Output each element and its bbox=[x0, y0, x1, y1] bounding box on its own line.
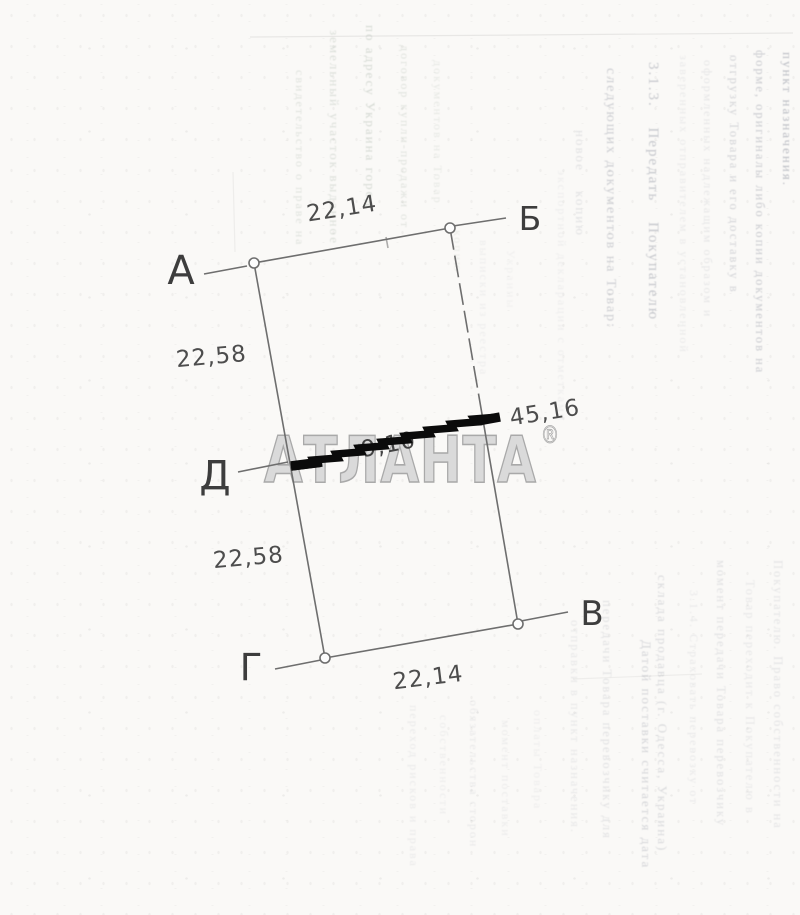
scanned-land-plot-page: { "plot": { "labels": { "a": "А", "b": "… bbox=[0, 0, 800, 915]
edge-b-v-upper bbox=[450, 228, 483, 420]
vertex-marker-a bbox=[249, 258, 259, 268]
vertex-label-g: Г bbox=[240, 646, 263, 689]
vertex-label-b: Б bbox=[519, 199, 542, 238]
redaction-line-nub bbox=[291, 462, 322, 466]
edge-g-v bbox=[325, 624, 518, 658]
scan-streak bbox=[250, 33, 793, 37]
vertex-marker-v bbox=[513, 619, 523, 629]
scan-streak bbox=[233, 172, 235, 252]
tick-g bbox=[275, 660, 321, 669]
edge-b-v-lower bbox=[483, 420, 518, 624]
redaction-line-nub bbox=[478, 417, 500, 421]
plot-diagram-svg: А Б В Г Д 22,14 22,58 22,58 22,14 45,16 … bbox=[0, 0, 800, 915]
tick-a bbox=[204, 266, 247, 274]
dimension-left-lower: 22,58 bbox=[212, 542, 285, 574]
scan-streak bbox=[573, 674, 702, 679]
dimension-cross: 45,16 bbox=[508, 395, 582, 432]
edge-a-b bbox=[254, 228, 450, 263]
vertex-marker-b bbox=[445, 223, 455, 233]
vertex-marker-g bbox=[320, 653, 330, 663]
tick-d bbox=[238, 462, 288, 472]
dimension-top: 22,14 bbox=[305, 191, 379, 228]
tick-b bbox=[453, 218, 506, 226]
vertex-label-v: В bbox=[580, 594, 603, 634]
tick-v bbox=[521, 612, 568, 621]
redaction-line bbox=[291, 417, 499, 467]
dimension-bottom: 22,14 bbox=[391, 661, 464, 695]
vertex-label-a: А bbox=[167, 248, 195, 294]
vertex-label-d: Д bbox=[199, 453, 230, 499]
dimension-left-upper: 22,58 bbox=[175, 341, 248, 373]
